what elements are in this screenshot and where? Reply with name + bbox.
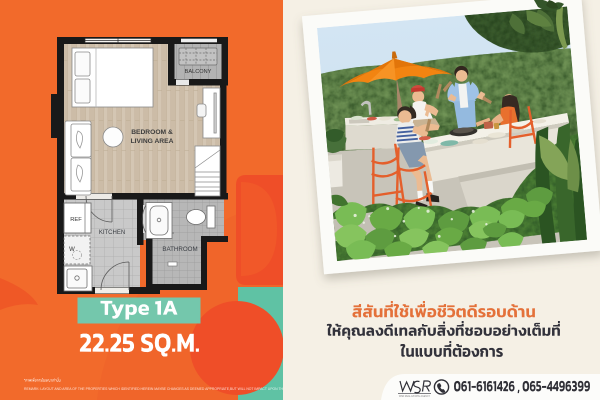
svg-text:REF: REF bbox=[70, 217, 82, 223]
svg-text:W: W bbox=[69, 247, 75, 253]
svg-text:WSR REAL ESTATE AGENCY: WSR REAL ESTATE AGENCY bbox=[399, 395, 431, 398]
svg-text:BATHROOM: BATHROOM bbox=[162, 246, 197, 253]
svg-text:REMARK: LAYOUT AND AREA OF THE: REMARK: LAYOUT AND AREA OF THE PROPERTIE… bbox=[24, 387, 294, 391]
svg-text:LIVING AREA: LIVING AREA bbox=[131, 138, 174, 145]
svg-text:BALCONY: BALCONY bbox=[185, 69, 212, 75]
svg-text:BEDROOM &: BEDROOM & bbox=[131, 129, 173, 136]
svg-text:KITCHEN: KITCHEN bbox=[99, 230, 125, 236]
